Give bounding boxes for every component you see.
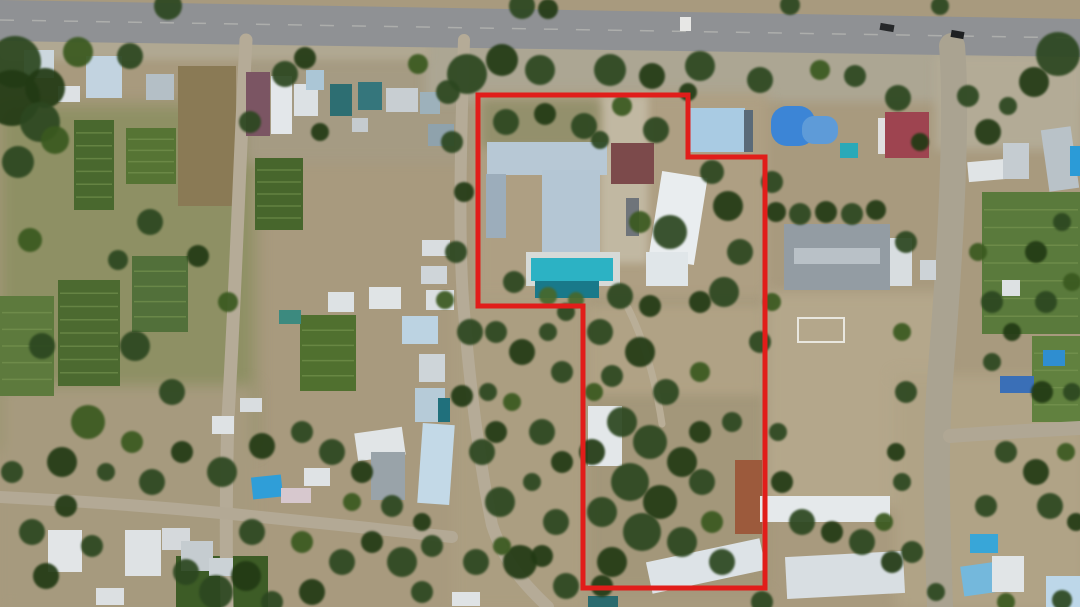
tree bbox=[539, 287, 557, 305]
tree bbox=[294, 47, 316, 69]
tree bbox=[585, 383, 603, 401]
tree bbox=[601, 365, 623, 387]
tree bbox=[311, 123, 329, 141]
tree bbox=[207, 457, 237, 487]
tree bbox=[319, 439, 345, 465]
shed-roof bbox=[212, 416, 234, 434]
tree bbox=[531, 545, 553, 567]
shed-roof bbox=[421, 266, 447, 284]
shed-roof bbox=[920, 260, 936, 280]
tree bbox=[1036, 32, 1080, 76]
white-roof bbox=[304, 468, 330, 486]
white-roof bbox=[96, 588, 124, 605]
tree bbox=[766, 202, 786, 222]
tree bbox=[701, 511, 723, 533]
swimming-pool bbox=[531, 258, 613, 281]
tree bbox=[689, 291, 711, 313]
tree bbox=[643, 485, 677, 519]
tree bbox=[587, 497, 617, 527]
white-roof bbox=[992, 556, 1024, 592]
tree bbox=[503, 271, 525, 293]
tree bbox=[1003, 323, 1021, 341]
school-ridge bbox=[794, 248, 880, 264]
tree bbox=[722, 412, 742, 432]
blue-panel bbox=[1000, 376, 1034, 393]
tree bbox=[844, 65, 866, 87]
tree bbox=[485, 321, 507, 343]
long-blue-roof bbox=[417, 423, 455, 505]
tree bbox=[387, 547, 417, 577]
tree bbox=[445, 241, 467, 263]
tree bbox=[108, 250, 128, 270]
house-hip-roof bbox=[86, 56, 122, 98]
tree bbox=[957, 85, 979, 107]
garden bbox=[126, 128, 176, 184]
tree bbox=[623, 513, 661, 551]
tree bbox=[821, 521, 843, 543]
tree bbox=[789, 509, 815, 535]
white-long-building bbox=[760, 496, 890, 522]
tree bbox=[653, 379, 679, 405]
tree bbox=[117, 43, 143, 69]
tree bbox=[653, 215, 687, 249]
tree bbox=[895, 381, 917, 403]
blue-tarp-dome bbox=[802, 116, 838, 144]
tree bbox=[447, 54, 487, 94]
tree bbox=[607, 407, 637, 437]
tree bbox=[1023, 459, 1049, 485]
tree bbox=[329, 549, 355, 575]
blue-tarp bbox=[1043, 350, 1065, 366]
tree bbox=[727, 239, 753, 265]
tree bbox=[63, 37, 93, 67]
tree bbox=[625, 337, 655, 367]
tree bbox=[1057, 443, 1075, 461]
tree bbox=[995, 441, 1017, 463]
tree bbox=[747, 67, 773, 93]
tree bbox=[769, 423, 787, 441]
tree bbox=[1, 461, 23, 483]
tree bbox=[454, 182, 474, 202]
tree bbox=[1025, 241, 1047, 263]
tree bbox=[479, 383, 497, 401]
tree bbox=[249, 433, 275, 459]
tree bbox=[291, 421, 313, 443]
tree bbox=[612, 96, 632, 116]
tree bbox=[866, 200, 886, 220]
tree bbox=[1019, 67, 1049, 97]
tree bbox=[525, 55, 555, 85]
teal-roof bbox=[279, 310, 301, 324]
tree bbox=[413, 513, 431, 531]
tree bbox=[469, 439, 495, 465]
tree bbox=[895, 231, 917, 253]
pink-roof bbox=[281, 488, 311, 503]
tree bbox=[457, 319, 483, 345]
house-roof bbox=[386, 88, 418, 112]
white-shed bbox=[452, 592, 480, 606]
blue-roof-building bbox=[687, 108, 745, 152]
tree bbox=[1053, 213, 1071, 231]
tree bbox=[911, 133, 929, 151]
tree bbox=[893, 323, 911, 341]
tree bbox=[629, 211, 651, 233]
tree bbox=[815, 201, 837, 223]
tree bbox=[291, 531, 313, 553]
tree bbox=[810, 60, 830, 80]
tree bbox=[408, 54, 428, 74]
school-stem bbox=[542, 170, 600, 256]
tree bbox=[463, 549, 489, 575]
white-roof bbox=[125, 530, 161, 576]
tree bbox=[29, 333, 55, 359]
tree bbox=[529, 419, 555, 445]
tree bbox=[543, 509, 569, 535]
tree bbox=[771, 471, 793, 493]
tree bbox=[849, 529, 875, 555]
garden-pool bbox=[840, 143, 858, 158]
gray-roof bbox=[371, 452, 405, 500]
tree bbox=[587, 319, 613, 345]
tree bbox=[607, 283, 633, 309]
white-roof bbox=[646, 252, 688, 286]
garden bbox=[132, 256, 188, 332]
rust-roof bbox=[735, 460, 762, 534]
tree bbox=[893, 473, 911, 491]
tree bbox=[700, 160, 724, 184]
tree bbox=[690, 362, 710, 382]
tree bbox=[485, 487, 515, 517]
shed-roof bbox=[240, 398, 262, 412]
white-eave bbox=[878, 118, 886, 154]
tree bbox=[137, 209, 163, 235]
tree bbox=[594, 54, 626, 86]
tree bbox=[81, 535, 103, 557]
white-roof bbox=[1002, 280, 1020, 296]
tree bbox=[689, 421, 711, 443]
tree bbox=[381, 495, 403, 517]
tree bbox=[1035, 291, 1057, 313]
tree bbox=[881, 551, 903, 573]
gray-roof bbox=[209, 558, 233, 576]
aerial-photograph bbox=[0, 0, 1080, 607]
tree bbox=[299, 579, 325, 605]
tree bbox=[789, 203, 811, 225]
tree bbox=[975, 119, 1001, 145]
tree bbox=[173, 559, 199, 585]
tree bbox=[643, 117, 669, 143]
tree bbox=[120, 331, 150, 361]
house-roof bbox=[146, 74, 174, 100]
tree bbox=[2, 146, 34, 178]
tree bbox=[272, 61, 298, 87]
tree bbox=[503, 393, 521, 411]
tree bbox=[689, 469, 715, 495]
tree bbox=[239, 519, 265, 545]
tree bbox=[534, 103, 556, 125]
garden-pool bbox=[970, 534, 998, 553]
tree bbox=[639, 295, 661, 317]
house-roof bbox=[419, 354, 445, 382]
tree bbox=[887, 443, 905, 461]
garden bbox=[1032, 336, 1080, 422]
backyard-pool bbox=[438, 398, 450, 422]
tree bbox=[551, 451, 573, 473]
tree bbox=[969, 243, 987, 261]
teal-roof bbox=[330, 84, 352, 116]
tree bbox=[553, 573, 579, 599]
tree bbox=[41, 126, 69, 154]
tree bbox=[159, 379, 185, 405]
tree bbox=[983, 353, 1001, 371]
tree bbox=[709, 549, 735, 575]
tilled-field bbox=[178, 66, 236, 206]
tree bbox=[1031, 381, 1053, 403]
tree bbox=[493, 537, 511, 555]
tree bbox=[709, 277, 739, 307]
tree bbox=[121, 431, 143, 453]
tree bbox=[539, 323, 557, 341]
tree bbox=[685, 51, 715, 81]
tree bbox=[486, 44, 518, 76]
maroon-hip-roof bbox=[611, 143, 654, 184]
tree bbox=[493, 109, 519, 135]
tree bbox=[19, 519, 45, 545]
tree bbox=[639, 63, 665, 89]
roof-edge bbox=[744, 110, 753, 152]
tree bbox=[633, 425, 667, 459]
school-annex bbox=[486, 174, 506, 238]
house-roof bbox=[306, 70, 324, 90]
tree bbox=[1037, 493, 1063, 519]
blue-bright-roof bbox=[1070, 146, 1080, 176]
tree bbox=[611, 463, 649, 501]
tree bbox=[485, 421, 507, 443]
branch-east bbox=[950, 428, 1080, 436]
tree bbox=[139, 469, 165, 495]
road-sign bbox=[680, 17, 691, 31]
tree bbox=[999, 97, 1017, 115]
tree bbox=[33, 563, 59, 589]
tree bbox=[981, 291, 1003, 313]
tree bbox=[436, 291, 454, 309]
tree bbox=[171, 441, 193, 463]
blue-tarp bbox=[251, 474, 283, 499]
tree bbox=[97, 463, 115, 481]
tree bbox=[901, 541, 923, 563]
tree bbox=[239, 111, 261, 133]
tree bbox=[231, 561, 261, 591]
tree bbox=[885, 85, 911, 111]
teal-roof bbox=[358, 82, 382, 110]
tree bbox=[218, 292, 238, 312]
tree bbox=[361, 531, 383, 553]
tree bbox=[343, 493, 361, 511]
blue-roof bbox=[402, 316, 438, 344]
white-roof bbox=[328, 292, 354, 312]
tree bbox=[749, 331, 771, 353]
tree bbox=[351, 461, 373, 483]
tree bbox=[451, 385, 473, 407]
tree bbox=[597, 547, 627, 577]
tree bbox=[71, 405, 105, 439]
white-roof bbox=[369, 287, 401, 309]
garden bbox=[300, 315, 356, 391]
tree bbox=[975, 495, 997, 517]
teal-roof bbox=[588, 596, 618, 607]
tree bbox=[411, 581, 433, 603]
aerial-photo-stage bbox=[0, 0, 1080, 607]
gray-hip-roof bbox=[1003, 143, 1029, 179]
tree bbox=[713, 191, 743, 221]
tree bbox=[187, 245, 209, 267]
tree bbox=[667, 527, 697, 557]
tree bbox=[927, 583, 945, 601]
tree bbox=[523, 473, 541, 491]
tree bbox=[421, 535, 443, 557]
tree bbox=[551, 361, 573, 383]
tree bbox=[18, 228, 42, 252]
tree bbox=[47, 447, 77, 477]
tree bbox=[875, 513, 893, 531]
tree bbox=[509, 339, 535, 365]
tree bbox=[841, 203, 863, 225]
tree bbox=[591, 131, 609, 149]
shed-roof bbox=[352, 118, 368, 132]
tree bbox=[55, 495, 77, 517]
tree bbox=[441, 131, 463, 153]
tree bbox=[667, 447, 697, 477]
